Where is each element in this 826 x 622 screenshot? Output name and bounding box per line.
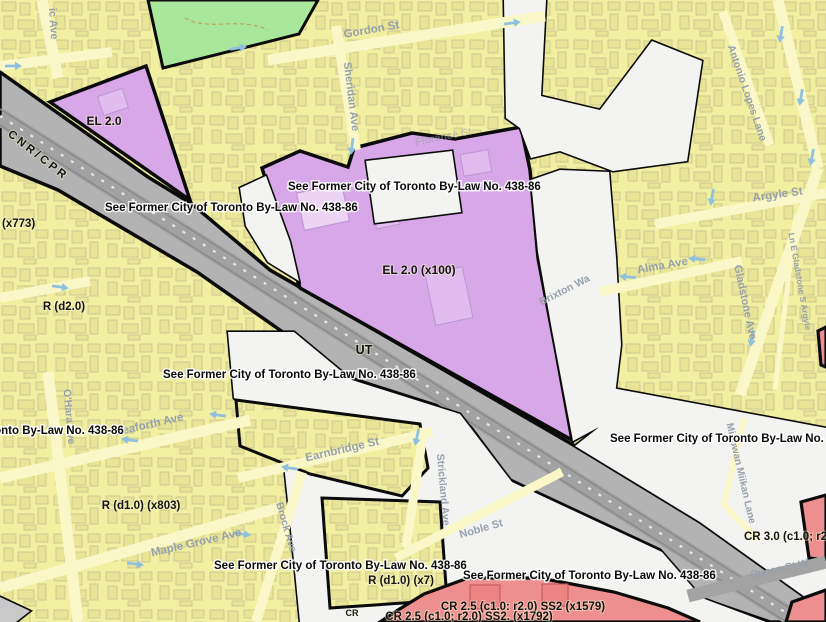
street-label-ic-ave: ic Ave <box>46 8 60 40</box>
zone-label-x773: (x773) <box>2 218 35 230</box>
bylaw-note-instance-5: See Former City of Toronto By-Law No. 43… <box>214 560 467 572</box>
zone-label-cr-3-0: CR 3.0 (c1.0; r2 <box>744 531 826 543</box>
zone-label-r-d1-0-x7: R (d1.0) (x7) <box>368 575 434 587</box>
zone-label-r-d2-0: R (d2.0) <box>43 301 85 313</box>
bylaw-note-instance-3: See Former City of Toronto By-Law No. 43… <box>163 369 416 381</box>
zone-label-ut: UT <box>356 343 373 357</box>
zone-label-cr-2-5-x1792: CR 2.5 (c1.0; r2.0) SS2. (x1792) <box>385 611 553 622</box>
zoning-map-viewport[interactable]: ic AveGordon StSheridan AveAntonio Lopes… <box>0 0 826 622</box>
zoning-map[interactable]: ic AveGordon StSheridan AveAntonio Lopes… <box>0 0 826 622</box>
zone-label-r-d1-0-x803: R (d1.0) (x803) <box>102 500 181 512</box>
zone-label-el-2-0: EL 2.0 <box>86 114 121 128</box>
bylaw-note-instance-1: See Former City of Toronto By-Law No. 43… <box>105 202 358 214</box>
bylaw-note-instance-4: See Former City of Toronto By-Law No. 43… <box>0 425 124 437</box>
zone-label-el-2-0-x100: EL 2.0 (x100) <box>382 263 455 277</box>
bylaw-note-instance-7: See Former City of Toronto By-Law No. 43… <box>610 433 826 445</box>
zone-label-cr-fragment: CR <box>346 608 359 618</box>
bylaw-note-instance-2: See Former City of Toronto By-Law No. 43… <box>288 181 541 193</box>
bylaw-note-instance-6: See Former City of Toronto By-Law No. 43… <box>463 570 716 582</box>
